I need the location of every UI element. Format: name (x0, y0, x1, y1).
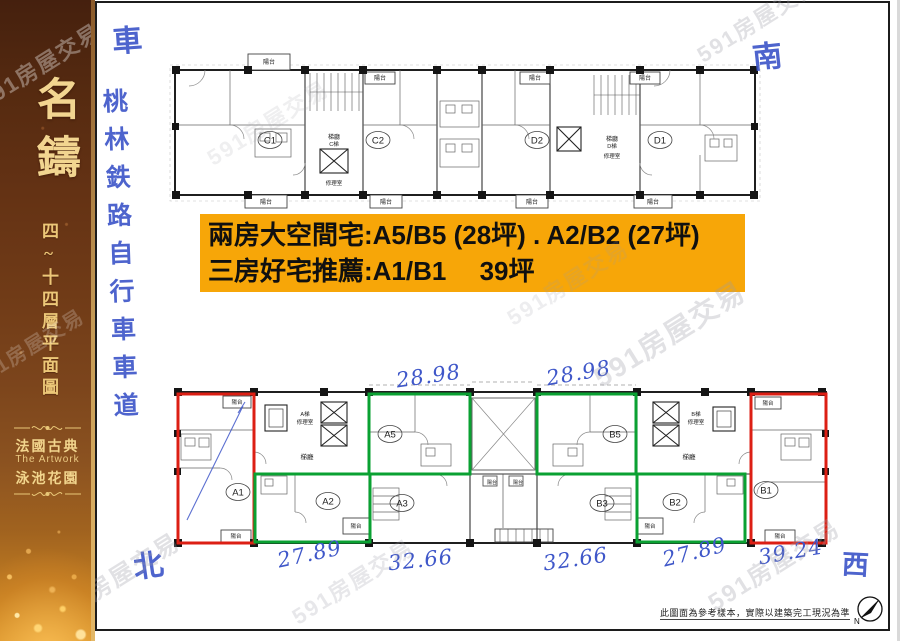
balcony-label: 陽台 (380, 198, 392, 206)
outer-wall (175, 70, 755, 195)
lobby-label: 梯廳 (328, 133, 340, 141)
elevator-c-label: C梯 (329, 140, 339, 148)
balcony-label: 陽台 (762, 399, 774, 407)
balcony-label: 陽台 (526, 198, 538, 206)
lobby-label: 梯廳 (301, 452, 315, 461)
floorplan-top: 陽台 陽台 陽台 陽台 陽台 陽台 陽台 陽台 梯廳 C梯 修理室 (160, 45, 770, 220)
eaves-lines (369, 382, 636, 385)
elevator-b-label: B梯 (691, 410, 701, 418)
sidebar-banner: 名鑄 四~十四層平面圖 法國古典 The Artwork 泳池花園 591房屋交… (0, 0, 95, 641)
balcony-label: 陽台 (230, 532, 242, 540)
floorplan-page: 陽台 陽台 陽台 陽台 陽台 陽台 陽台 陽台 梯廳 C梯 修理室 (0, 0, 900, 641)
unit-label-a3: A3 (396, 499, 408, 510)
lobby-label: 梯廳 (683, 452, 697, 461)
disclaimer-label: 此圖面為參考樣本，實際以建築完工現況為準 (660, 608, 850, 620)
balcony-label: 陽台 (374, 74, 386, 82)
outer-wall (178, 392, 826, 543)
ornament-divider-bottom (12, 488, 83, 500)
unit-label-b5: B5 (609, 430, 621, 441)
unit-label-d2: D2 (531, 136, 543, 147)
promo-line-3room: 三房好宅推薦:A1/B1 39坪 (208, 253, 737, 289)
machine-room-label: 修理室 (326, 179, 343, 187)
unit-label-c1: C1 (264, 136, 276, 147)
unit-label-b1: B1 (760, 486, 772, 497)
machine-room-label: 修理室 (604, 152, 621, 160)
balcony-label: 陽台 (639, 74, 651, 82)
balcony-label: 陽台 (350, 522, 362, 530)
unit-label-a1: A1 (232, 488, 244, 499)
unit-label-d1: D1 (654, 136, 666, 147)
compass-n-label: N (854, 617, 860, 626)
tagline-french-classic: 法國古典 (0, 436, 95, 456)
promo-line-2room: 兩房大空間宅:A5/B5 (28坪) . A2/B2 (27坪) (208, 217, 737, 253)
balcony-label: 陽台 (231, 398, 243, 406)
balcony-label: 陽台 (774, 532, 786, 540)
tagline-pool-garden: 泳池花園 (0, 468, 95, 488)
project-title: 名鑄 (22, 76, 86, 192)
balcony-label: 陽台 (529, 74, 541, 82)
machine-room-label: 修理室 (688, 418, 705, 426)
tagline-artwork: The Artwork (0, 454, 95, 465)
balcony-label: 陽台 (487, 479, 497, 486)
unit-label-a5: A5 (384, 430, 396, 441)
promo-highlight-box: 兩房大空間宅:A5/B5 (28坪) . A2/B2 (27坪) 三房好宅推薦:… (200, 214, 745, 292)
balcony-label: 陽台 (513, 479, 523, 486)
balcony-label: 陽台 (647, 198, 659, 206)
unit-label-b2: B2 (669, 498, 681, 509)
elevator-d-label: D梯 (607, 142, 617, 150)
unit-label-c2: C2 (372, 136, 384, 147)
ornament-divider-top (12, 422, 83, 434)
balcony-label: 陽台 (644, 522, 656, 530)
unit-label-b3: B3 (596, 499, 608, 510)
floorplan-subtitle: 四~十四層平面圖 (36, 222, 61, 400)
floorplan-bottom: A梯 修理室 梯廳 B梯 修理室 梯廳 陽台 陽台 (165, 372, 835, 557)
lobby-label: 梯廳 (606, 135, 618, 143)
unit-label-a2: A2 (322, 497, 334, 508)
elevator-a-label: A梯 (300, 410, 310, 418)
machine-room-label: 修理室 (297, 418, 314, 426)
balcony-label: 陽台 (263, 58, 275, 66)
balcony-label: 陽台 (260, 198, 272, 206)
compass-icon: N (851, 593, 887, 629)
disclaimer-text: 此圖面為參考樣本，實際以建築完工現況為準 (615, 606, 850, 619)
